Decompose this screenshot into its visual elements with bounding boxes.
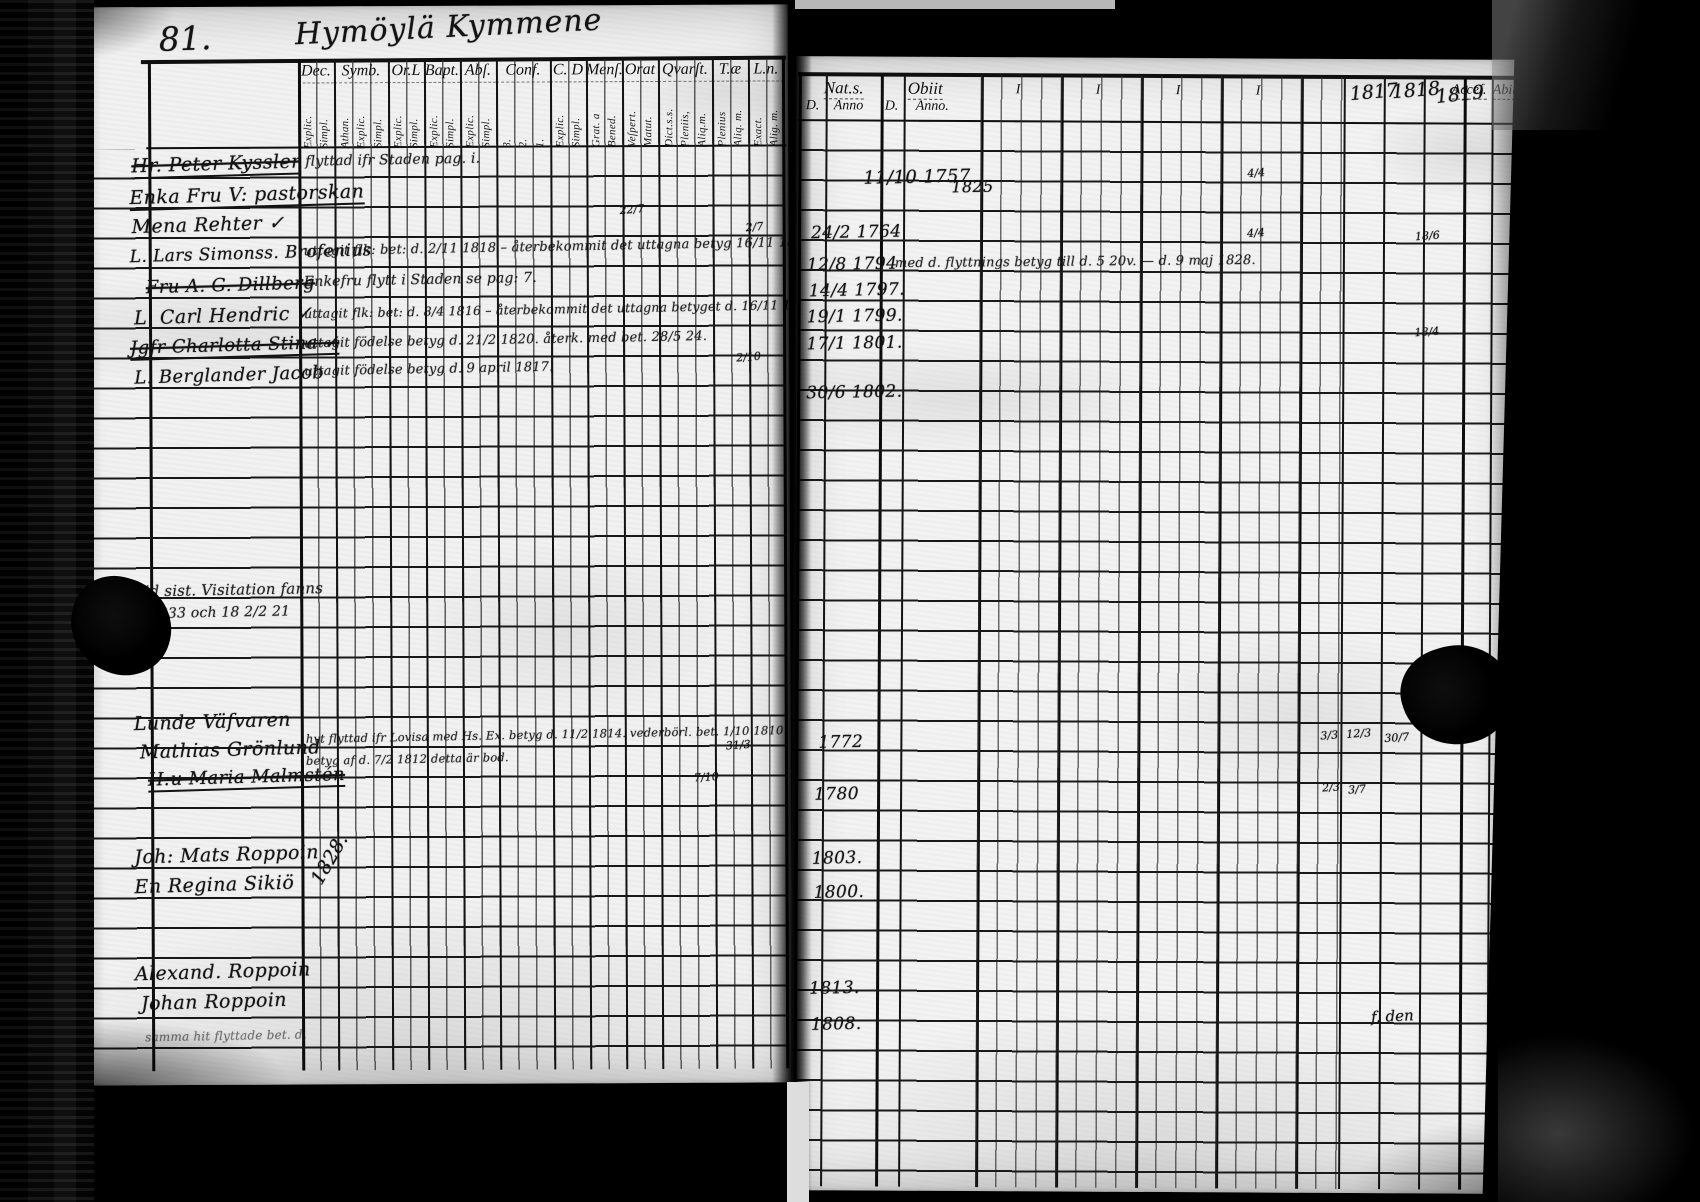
column-label: Qvarſt. — [658, 59, 712, 82]
column-rule — [658, 59, 665, 1069]
column-rule — [388, 60, 395, 1070]
subcolumn-label: Plenius — [716, 83, 728, 147]
nat-year: 1800. — [813, 882, 864, 903]
entry-name: En Regina Sikiö — [134, 872, 294, 899]
column-rule — [424, 60, 431, 1070]
column-rule — [1055, 75, 1064, 1187]
subcolumn-label: Simpl. — [318, 84, 330, 148]
book-photo: 81. Hymöylä Kymmene Dec. Explic.Simpl. S… — [0, 0, 1700, 1202]
nat-date: 30/6 1802. — [806, 381, 903, 403]
fraction-mark: 18/6 — [1415, 229, 1440, 244]
header-bottom-rule — [798, 119, 1520, 125]
subcolumn-label: 1. — [533, 83, 545, 147]
subcolumn-label: Explic. — [392, 84, 404, 148]
entry-annotation: uttagit flk: bet: d. 8/4 1816 – återbeko… — [304, 297, 792, 321]
column-group-orl: Or.L Explic.Simpl. — [388, 60, 424, 148]
column-rule — [148, 61, 156, 1071]
entry-name: L. Berglander Jacob — [134, 362, 325, 388]
column-rule — [748, 59, 755, 1069]
column-rule — [460, 60, 467, 1070]
subcolumn-label: Aliq.m. — [695, 83, 707, 147]
column-group-dec: Dec. Explic.Simpl. — [298, 60, 334, 148]
entry-name: Lunde Väfvaren — [133, 709, 291, 736]
subcolumn-label: Grat. a — [590, 83, 602, 147]
nat-date: 19/1 1799. — [806, 305, 903, 327]
fraction-mark: 2/3 — [1322, 780, 1341, 794]
subcolumn-label: Explic. — [554, 83, 566, 147]
column-rule — [1215, 76, 1224, 1188]
fraction-mark: 30/7 — [1384, 730, 1409, 745]
nat-date: 17/1 1801. — [806, 332, 903, 354]
entry-name: Joh: Mats Roppoin — [134, 841, 319, 868]
spine-bottom-highlight — [787, 1082, 809, 1202]
subcolumn-label: Explic. — [302, 84, 314, 148]
subcolumn-label: Pleniis, — [679, 83, 691, 147]
entry-annotation: uttagit födelse betyg d. 21/2 1820. åter… — [304, 329, 707, 351]
fraction-mark: 4/4 — [1247, 166, 1266, 180]
obiit-year: 1825 — [951, 177, 994, 197]
column-group-conf: Conf. 3.2.1. — [496, 59, 550, 147]
section-mark: I — [1176, 83, 1181, 99]
column-group-abs: Abſ. Explic.Simpl. — [460, 60, 496, 148]
column-label: T.æ — [712, 59, 748, 82]
nat-year: 1813. — [809, 978, 860, 999]
entry-name: H:u Maria Malmstén — [148, 764, 346, 793]
obiit-anno-label: Anno. — [916, 99, 949, 115]
entry-annotation: uttagit flk: bet: d. 2/11 1818 – återbek… — [304, 235, 793, 260]
year-heading: 1818 — [1391, 77, 1441, 103]
flyttning-note: med d. flyttnings betyg till d. 5 20v. —… — [895, 253, 1256, 271]
nat-date: 14/4 1797. — [809, 280, 906, 302]
entry-name: Enka Fru V: pastorskan — [129, 180, 364, 211]
obiit-day-label: D. — [885, 99, 899, 115]
column-rule — [1338, 77, 1346, 1189]
fraction-mark: 7/10 — [694, 770, 720, 785]
column-group-orat: Orat Veſpert.Matut. — [622, 59, 658, 147]
column-group-qvarst: Qvarſt. Dict.s.s.Pleniis,Aliq.m. — [658, 59, 712, 147]
nat-year: 1808. — [811, 1014, 862, 1035]
entry-annotation: uttagit födelse betyg d. 9 april 1817. — [304, 360, 554, 380]
column-rule — [334, 60, 341, 1070]
column-rule — [1458, 78, 1467, 1190]
column-label: C. D — [550, 59, 586, 82]
subcolumn-label: Bened. — [606, 83, 618, 147]
column-label: Or.L — [388, 60, 424, 83]
column-group-cd: C. D Explic.Simpl. — [550, 59, 586, 147]
entry-name: Mathias Grönlund — [140, 736, 321, 763]
column-label: Symb. — [334, 60, 388, 83]
nat-date: 24/2 1764 — [811, 222, 902, 244]
page-top-highlight — [795, 0, 1115, 9]
entry-name: L. Carl Hendric ✓ — [134, 302, 313, 329]
fraction-mark: 2/10 — [736, 350, 762, 365]
subcolumn-label: Matut. — [642, 83, 654, 147]
column-rule — [1135, 76, 1144, 1188]
column-label: Menſ. — [586, 59, 622, 82]
subcolumn-label: Aliq. m. — [732, 83, 744, 147]
column-label: Bapt. — [424, 60, 460, 83]
nat-anno-label: Anno — [834, 98, 864, 114]
fraction-mark: 12/3 — [1346, 726, 1371, 741]
section-mark: I — [1096, 83, 1101, 99]
left-page: 81. Hymöylä Kymmene Dec. Explic.Simpl. S… — [53, 4, 793, 1085]
column-rule — [496, 60, 503, 1070]
acces-column-label: Acceſ. — [1452, 83, 1487, 100]
column-rule — [550, 59, 557, 1069]
nat-year: 1780 — [814, 784, 859, 805]
entry-annotation: flyttad ifr Staden pag. i. — [305, 151, 480, 170]
section-mark: I — [1256, 84, 1261, 100]
book-spine-shadow — [772, 0, 814, 1202]
subcolumn-label: 2. — [517, 84, 529, 148]
page-title: Hymöylä Kymmene — [294, 4, 603, 52]
subcolumn-label: Simpl. — [408, 84, 420, 148]
subcolumn-label: Simpl. — [371, 84, 383, 148]
column-label: Abſ. — [460, 60, 496, 83]
subcolumn-label: Explic. — [464, 84, 476, 148]
entry-name: Johan Roppoin — [141, 989, 287, 1015]
subcolumn-label: Exact. — [752, 83, 764, 147]
column-group-bapt: Bapt. Explic.Simpl. — [424, 60, 460, 148]
subcolumn-label: Dict.s.s. — [662, 83, 674, 147]
subcolumn-label: 3. — [500, 84, 512, 148]
fraction-mark: 2/7 — [745, 220, 764, 234]
section-mark: I — [1016, 82, 1021, 98]
column-label: Orat — [622, 59, 658, 82]
subcolumn-label: Explic. — [355, 84, 367, 148]
entry-name: Fru A. G. Dillberg — [146, 272, 316, 298]
fraction-mark: 3/7 — [1348, 782, 1367, 796]
fraction-mark: 4/4 — [1247, 226, 1266, 240]
subcolumn-label: Explic. — [428, 84, 440, 148]
entry-name: Hr. Peter Kyssler — [131, 150, 301, 179]
nat-date: 12/8 1794 — [807, 254, 898, 276]
column-rule — [298, 61, 306, 1071]
page-number: 81. — [158, 18, 212, 59]
bottom-partial-note: samma hit flyttade bet. d. — [145, 1027, 307, 1044]
right-page: Nat.s. Obiit D. Anno D. Anno. I I I I 18… — [790, 56, 1523, 1194]
right-subcolumn-grid — [975, 75, 1344, 1189]
fraction-mark: 31/3 — [725, 738, 751, 753]
column-label: Conf. — [496, 59, 550, 82]
column-group-symb: Symb. Athan.Explic.Simpl. — [334, 60, 388, 148]
column-rule — [1418, 77, 1426, 1189]
entry-name: Alexand. Roppoin — [135, 958, 311, 985]
subcolumn-label: Veſpert. — [626, 83, 638, 147]
subcolumn-label: Athan. — [338, 84, 350, 148]
fraction-mark: 18/4 — [1414, 325, 1439, 340]
nat-year: 1772 — [818, 732, 863, 753]
column-group-tae: T.æ PleniusAliq. m. — [712, 59, 748, 147]
nat-year: 1803. — [812, 848, 863, 869]
column-rule — [586, 59, 593, 1069]
side-note: f. den — [1371, 1006, 1415, 1026]
subcolumn-label: Simpl. — [444, 84, 456, 148]
column-rule — [1295, 77, 1304, 1189]
obiit-column-label: Obiit — [908, 79, 943, 100]
entry-annotation: Enkefru flytt i Staden se pag: 7. — [304, 270, 537, 290]
fraction-mark: 3/3 — [1320, 728, 1339, 742]
entry-name: Mena Rehter ✓ — [131, 212, 285, 238]
column-group-mens: Menſ. Grat. aBened. — [586, 59, 622, 147]
subcolumn-label: Simpl. — [570, 83, 582, 147]
column-label: Dec. — [298, 60, 334, 83]
subcolumn-label: Simpl. — [480, 84, 492, 148]
column-rule — [712, 59, 719, 1069]
nat-column-label: Nat.s. — [824, 78, 864, 99]
column-rule — [975, 75, 984, 1187]
book-edge-right — [1479, 0, 1700, 1202]
fraction-mark: 22/7 — [619, 202, 645, 217]
